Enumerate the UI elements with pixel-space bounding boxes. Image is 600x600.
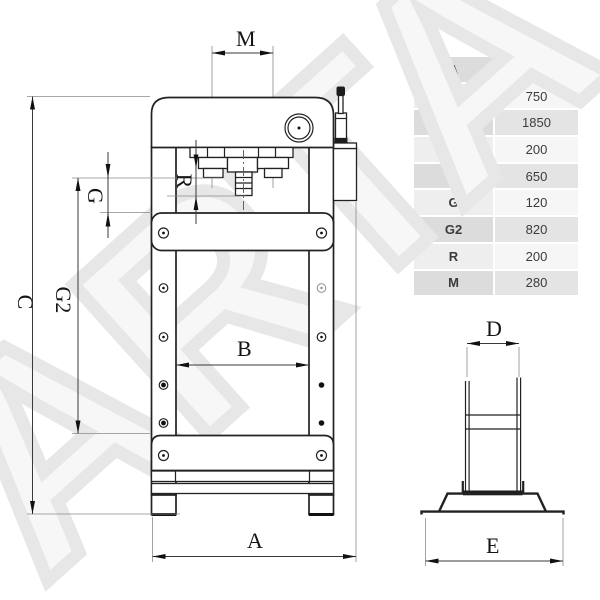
dim-label-G2: G2 — [51, 287, 76, 314]
bottom-rail — [152, 484, 334, 494]
dim-arrow — [194, 155, 199, 169]
pump-body — [334, 149, 357, 201]
pump-bracket — [334, 143, 357, 149]
cylinder-nose — [265, 169, 283, 178]
cylinder-block — [199, 158, 228, 169]
cylinder-nose — [204, 169, 224, 178]
upper-beam — [152, 213, 334, 251]
press-dimension-diagram: A1080 B750 C1850 D200 E650 G120 G2820 R2… — [0, 0, 600, 600]
dim-label-B: B — [237, 336, 252, 361]
pump-handle-knob — [337, 87, 346, 97]
dim-arrow — [106, 164, 111, 178]
base-fill — [439, 494, 546, 512]
front-view: M C G2 G — [13, 26, 357, 562]
dim-label-A: A — [247, 528, 263, 553]
pump-handle-rod — [339, 96, 344, 114]
dim-label-G: G — [83, 188, 108, 204]
cylinder-block — [228, 158, 258, 173]
left-foot — [152, 495, 177, 515]
side-view: D E — [422, 316, 564, 566]
beam-pin-dot — [320, 232, 323, 235]
base-flange — [422, 512, 564, 515]
dim-arrow — [106, 213, 111, 227]
pressure-gauge-center — [298, 127, 301, 130]
bottom-rail — [152, 471, 334, 482]
lower-beam — [152, 436, 334, 471]
dim-label-R: R — [172, 174, 197, 189]
cylinder-plate — [190, 148, 293, 158]
beam-pin-dot — [320, 454, 323, 457]
dim-label-C: C — [13, 295, 38, 310]
beam-pin-dot — [162, 454, 165, 457]
cylinder-block — [258, 158, 289, 169]
dim-label-E: E — [486, 533, 499, 558]
pump-socket — [336, 113, 347, 139]
dim-label-D: D — [486, 316, 502, 341]
pump-collar — [335, 138, 348, 143]
dim-label-M: M — [236, 26, 256, 51]
beam-pin-dot — [162, 232, 165, 235]
dim-arrow — [194, 196, 199, 210]
right-foot — [309, 495, 334, 515]
technical-drawing: M C G2 G — [0, 0, 600, 600]
